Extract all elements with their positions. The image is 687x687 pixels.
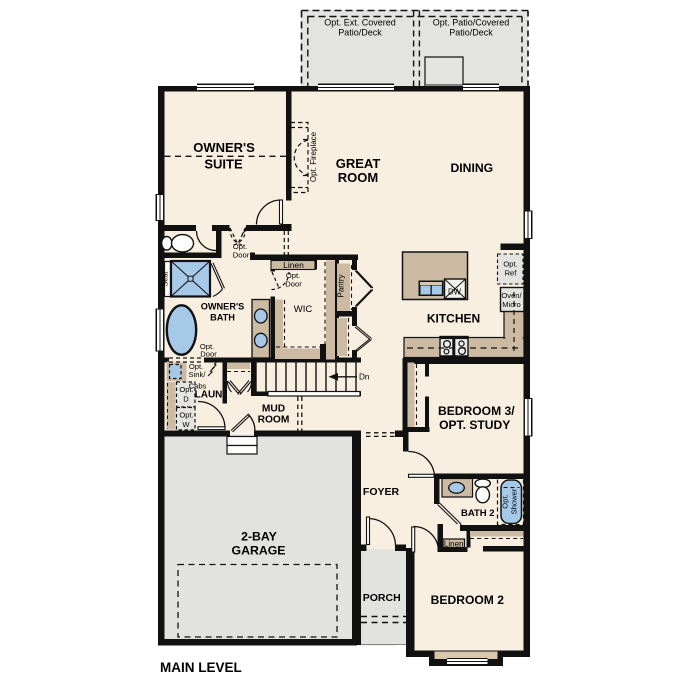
svg-text:WIC: WIC — [294, 304, 313, 315]
svg-text:Linen: Linen — [444, 539, 464, 548]
svg-text:Door: Door — [200, 350, 217, 359]
svg-text:SUITE: SUITE — [204, 157, 243, 172]
svg-text:Sink/: Sink/ — [189, 370, 207, 379]
svg-text:BATH 2: BATH 2 — [461, 508, 495, 519]
svg-text:W: W — [182, 420, 190, 429]
svg-text:Shower: Shower — [510, 488, 519, 514]
svg-text:D: D — [183, 395, 189, 404]
svg-text:Oven/: Oven/ — [501, 291, 522, 300]
svg-text:Ref: Ref — [505, 269, 518, 278]
svg-text:DW: DW — [448, 288, 462, 297]
svg-text:GARAGE: GARAGE — [232, 543, 286, 557]
svg-text:2-BAY: 2-BAY — [241, 530, 277, 544]
svg-text:Linen: Linen — [283, 260, 304, 270]
svg-text:Dn: Dn — [359, 373, 370, 382]
svg-text:Patio/Deck: Patio/Deck — [449, 28, 493, 38]
svg-text:OWNER'S: OWNER'S — [193, 140, 255, 155]
svg-text:Opt.: Opt. — [179, 385, 193, 394]
svg-text:Micro: Micro — [502, 300, 521, 309]
svg-text:Seat: Seat — [161, 272, 170, 287]
svg-text:FOYER: FOYER — [363, 486, 400, 498]
svg-text:Opt. Ext. Covered: Opt. Ext. Covered — [324, 18, 396, 28]
svg-text:Patio/Deck: Patio/Deck — [338, 28, 382, 38]
svg-text:KITCHEN: KITCHEN — [427, 311, 480, 325]
svg-text:MUD: MUD — [262, 403, 285, 414]
svg-text:OWNER'S: OWNER'S — [201, 302, 245, 312]
svg-text:ROOM: ROOM — [338, 170, 378, 185]
svg-text:Opt.: Opt. — [501, 494, 510, 508]
svg-text:Opt. Patio/Covered: Opt. Patio/Covered — [433, 18, 510, 28]
svg-text:MAIN LEVEL: MAIN LEVEL — [160, 660, 242, 675]
svg-text:OPT. STUDY: OPT. STUDY — [439, 418, 510, 432]
svg-text:Door: Door — [233, 251, 250, 260]
svg-text:Opt.: Opt. — [179, 411, 193, 420]
svg-text:ROOM: ROOM — [258, 414, 290, 425]
svg-text:GREAT: GREAT — [336, 156, 381, 171]
svg-text:LAUN: LAUN — [195, 389, 223, 400]
svg-text:BEDROOM 3/: BEDROOM 3/ — [438, 404, 515, 418]
svg-text:PORCH: PORCH — [363, 592, 401, 604]
svg-text:Door: Door — [285, 280, 302, 289]
svg-text:BATH: BATH — [210, 313, 235, 323]
svg-text:Opt.: Opt. — [503, 260, 517, 269]
svg-text:DINING: DINING — [450, 161, 493, 175]
svg-text:Opt. Fireplace: Opt. Fireplace — [309, 131, 318, 182]
svg-text:Pantry: Pantry — [337, 274, 346, 297]
svg-text:BEDROOM 2: BEDROOM 2 — [431, 593, 505, 607]
